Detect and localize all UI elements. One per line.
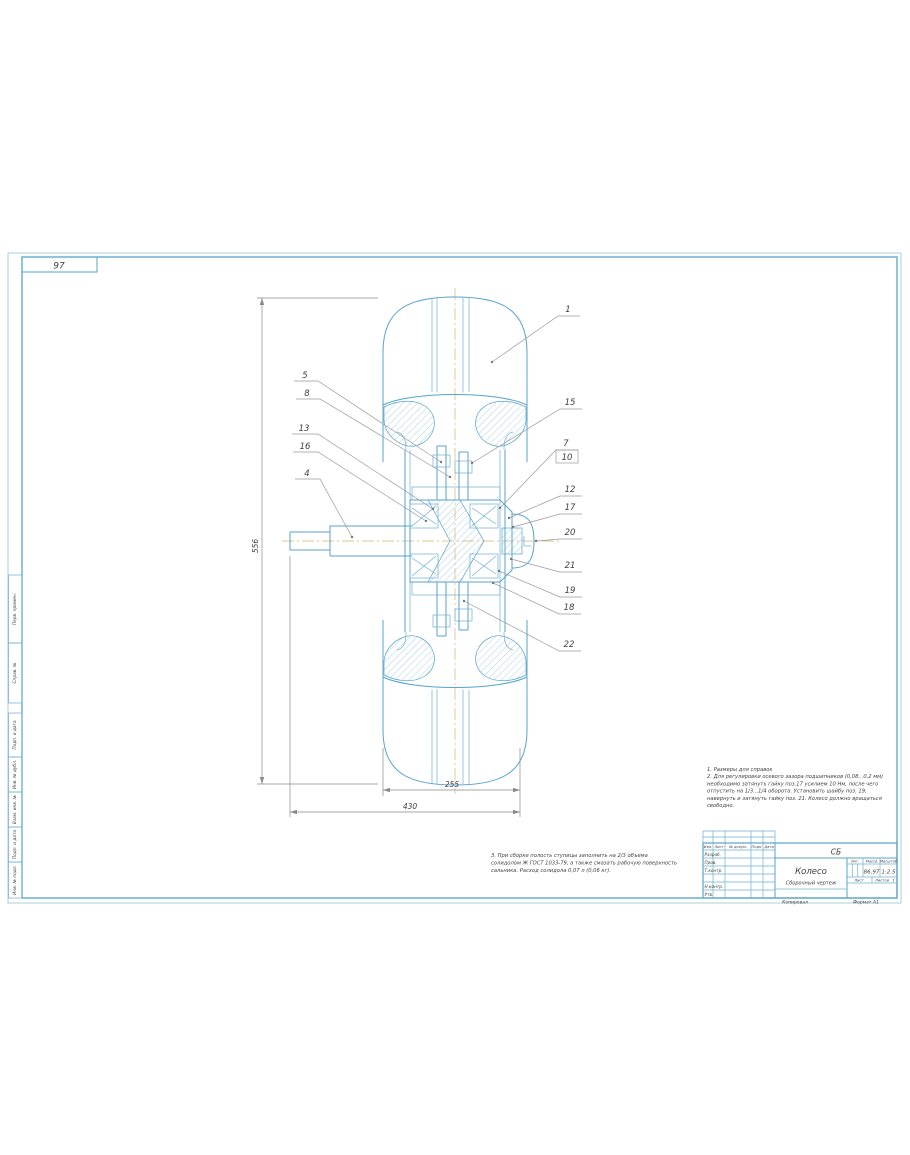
- note-line: свободно.: [707, 803, 734, 809]
- note-line: навернуть и затянуть гайку поз. 21. Коле…: [707, 796, 882, 802]
- tb-copied-label: Копировал: [782, 900, 808, 906]
- tb-row-label: Н.контр.: [705, 884, 724, 889]
- tb-col-header: Изм.: [704, 845, 712, 849]
- tire-bead-hatch: [384, 401, 434, 446]
- tb-doc-kind: Сборочный чертеж: [786, 881, 837, 887]
- callout-1: 1: [491, 305, 580, 363]
- note-line: 2. Для регулировки осевого зазора подшип…: [707, 774, 883, 780]
- tire-bead-hatch: [476, 636, 526, 681]
- callout-10: 10: [556, 450, 578, 463]
- tire-bead-hatch: [476, 401, 526, 446]
- tb-row-label: Пров.: [705, 860, 717, 865]
- tb-sheet-label: Лист: [853, 878, 864, 883]
- technical-notes-top: 1. Размеры для справок 2. Для регулировк…: [707, 767, 883, 809]
- wheel-studs-top: [433, 446, 472, 500]
- tb-lit-label: Лит.: [850, 859, 859, 863]
- tb-col-header: Дата: [763, 845, 773, 849]
- callout-label: 21: [565, 561, 576, 571]
- technical-notes-bottom: 3. При сборке полость ступицы заполнить …: [491, 853, 677, 874]
- hub-hatch: [428, 500, 484, 582]
- callout-21: 21: [510, 558, 582, 572]
- drawing-page: 97 Перв. примен. Справ. № Подп. и дата И…: [0, 0, 910, 1155]
- margin-stamps: Перв. примен. Справ. № Подп. и дата Инв.…: [9, 575, 23, 898]
- note-line: 3. При сборке полость ступицы заполнить …: [491, 853, 648, 859]
- tb-col-header: Лист: [713, 845, 724, 849]
- tb-sheets-label: Листов: [874, 878, 890, 883]
- stamp-label: Инв. № подл.: [12, 865, 18, 895]
- callout-label: 20: [565, 528, 576, 538]
- tb-row-label: Разраб.: [705, 852, 721, 857]
- callout-label: 7: [563, 439, 569, 449]
- callout-label: 13: [299, 424, 310, 434]
- tb-doc-code: СБ: [831, 848, 841, 857]
- tb-col-header: Подп.: [752, 845, 763, 849]
- callout-label: 4: [304, 469, 309, 479]
- corner-designation-box: 97: [22, 257, 97, 272]
- dimension-value: 556: [251, 539, 260, 554]
- stamp-cell: Взам. инв. №: [9, 792, 23, 827]
- tb-format-label: Формат А1: [853, 900, 879, 906]
- stamp-cell: Инв. № подл.: [9, 862, 23, 898]
- stamp-cell: Подп. и дата: [9, 713, 23, 757]
- note-line: отпустить на 1/3...1/4 оборота. Установи…: [707, 789, 867, 795]
- stamp-cell: Справ. №: [9, 643, 23, 703]
- callout-20: 20: [535, 528, 582, 542]
- stamp-label: Взам. инв. №: [12, 794, 18, 824]
- callout-label: 5: [302, 371, 307, 381]
- wheel-studs-bottom: [433, 582, 472, 636]
- callout-label: 10: [562, 453, 573, 463]
- stamp-label: Перв. примен.: [12, 593, 18, 625]
- callout-label: 1: [565, 305, 570, 315]
- callout-label: 15: [565, 398, 576, 408]
- note-line: сальника. Расход солидола 0,07 л (0,06 к…: [491, 868, 611, 874]
- stamp-label: Подп. и дата: [12, 830, 18, 860]
- callout-label: 18: [564, 603, 575, 613]
- corner-designation-label: 97: [53, 262, 65, 272]
- dimensions: 556 255 430: [251, 298, 520, 817]
- tb-title: Колесо: [795, 867, 827, 877]
- stamp-cell: Перв. примен.: [9, 575, 23, 643]
- callout-label: 16: [300, 442, 311, 452]
- tb-mass-value: 86,97: [864, 870, 880, 876]
- stamp-cell: Инв. № дубл.: [9, 757, 23, 792]
- tb-sheets-value: 1: [892, 878, 894, 883]
- tb-col-header: № докум.: [728, 845, 747, 849]
- note-line: солидолом Ж ГОСТ 1033-79, а также смазат…: [491, 861, 677, 867]
- tb-row-label: Т.контр.: [705, 868, 723, 873]
- callout-label: 12: [565, 485, 576, 495]
- callout-7: 7: [499, 439, 578, 509]
- callout-label: 8: [304, 389, 310, 399]
- bearing: [410, 504, 438, 528]
- note-line: необходимо затянуть гайку поз.17 усилием…: [707, 781, 878, 787]
- stamp-label: Подп. и дата: [12, 720, 18, 750]
- title-block: Изм. Лист № докум. Подп. Дата Разраб. Пр…: [703, 831, 898, 906]
- callout-4: 4: [295, 469, 353, 538]
- drawing-sheet: 97 Перв. примен. Справ. № Подп. и дата И…: [0, 0, 910, 1155]
- callout-16: 16: [293, 442, 427, 522]
- callout-label: 19: [565, 586, 576, 596]
- bearing: [470, 504, 498, 528]
- stamp-label: Инв. № дубл.: [12, 760, 18, 789]
- tb-scale-value: 1:2.5: [881, 870, 896, 876]
- tb-scale-label: Масштаб: [880, 859, 898, 863]
- dimension-value: 430: [403, 802, 418, 811]
- callout-19: 19: [498, 570, 582, 597]
- note-line: 1. Размеры для справок: [707, 767, 773, 773]
- tb-mass-label: Масса: [866, 859, 877, 863]
- callout-label: 17: [565, 503, 576, 513]
- dimension-value: 255: [445, 780, 460, 789]
- tire-bead-hatch: [384, 636, 434, 681]
- tb-row-label: Утв.: [705, 892, 714, 897]
- dimension-rim-width: 255: [383, 748, 520, 796]
- callout-label: 22: [564, 640, 575, 650]
- stamp-cell: Подп. и дата: [9, 827, 23, 862]
- stamp-label: Справ. №: [12, 662, 18, 683]
